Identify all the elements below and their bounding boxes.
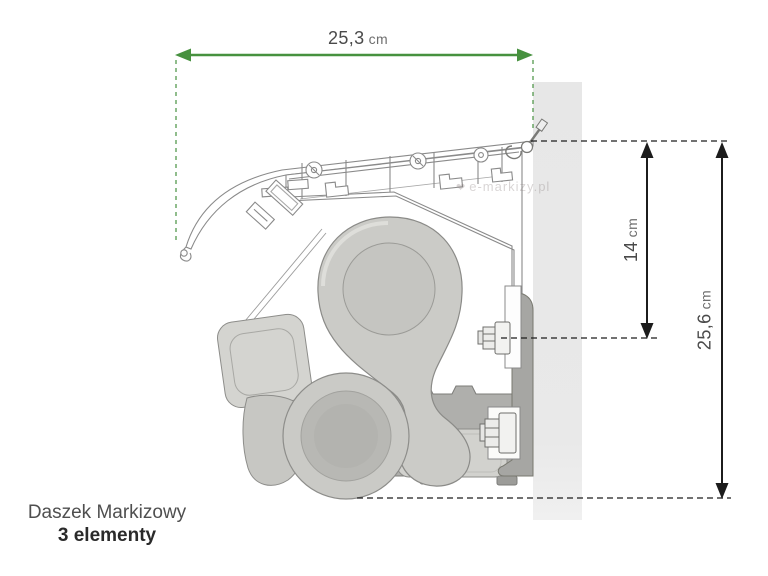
arrowhead-right-icon: [517, 49, 533, 62]
arrowhead-down-icon: [641, 323, 654, 339]
dimension-drop-label: 14cm: [620, 201, 642, 279]
arrowhead-up-icon: [641, 142, 654, 158]
awning-cross-section-diagram: [0, 0, 768, 576]
dimension-total-label: 25,6cm: [694, 273, 716, 368]
dimension-width-label: 25,3cm: [276, 27, 440, 50]
arrowhead-down-icon: [716, 483, 729, 499]
drop-value: 14: [621, 241, 641, 262]
caption-subtitle: 3 elementy: [14, 524, 200, 548]
dimension-total-height: [716, 142, 729, 499]
width-value: 25,3: [328, 28, 365, 48]
watermark-text: e-markizy.pl: [469, 179, 550, 194]
dimension-drop: [641, 142, 654, 339]
arrowhead-up-icon: [716, 142, 729, 158]
total-unit: cm: [698, 290, 714, 309]
product-caption: Daszek Markizowy 3 elementy: [14, 501, 200, 548]
heart-icon: ❤: [456, 182, 466, 194]
mounting-bolt-lower: [480, 413, 516, 453]
arm-pivot-disc: [343, 243, 435, 335]
watermark: ❤e-markizy.pl: [456, 179, 550, 194]
wall-surface: [533, 82, 582, 520]
fabric-roller: [283, 373, 409, 499]
caption-title: Daszek Markizowy: [14, 501, 200, 524]
drop-unit: cm: [624, 218, 640, 237]
product-diagram-page: ❤e-markizy.pl 25,3cm 14cm 25,6cm Daszek …: [0, 0, 768, 576]
width-unit: cm: [369, 31, 388, 47]
total-value: 25,6: [695, 313, 715, 350]
arrowhead-left-icon: [175, 49, 191, 62]
bracket-foot: [497, 476, 517, 485]
